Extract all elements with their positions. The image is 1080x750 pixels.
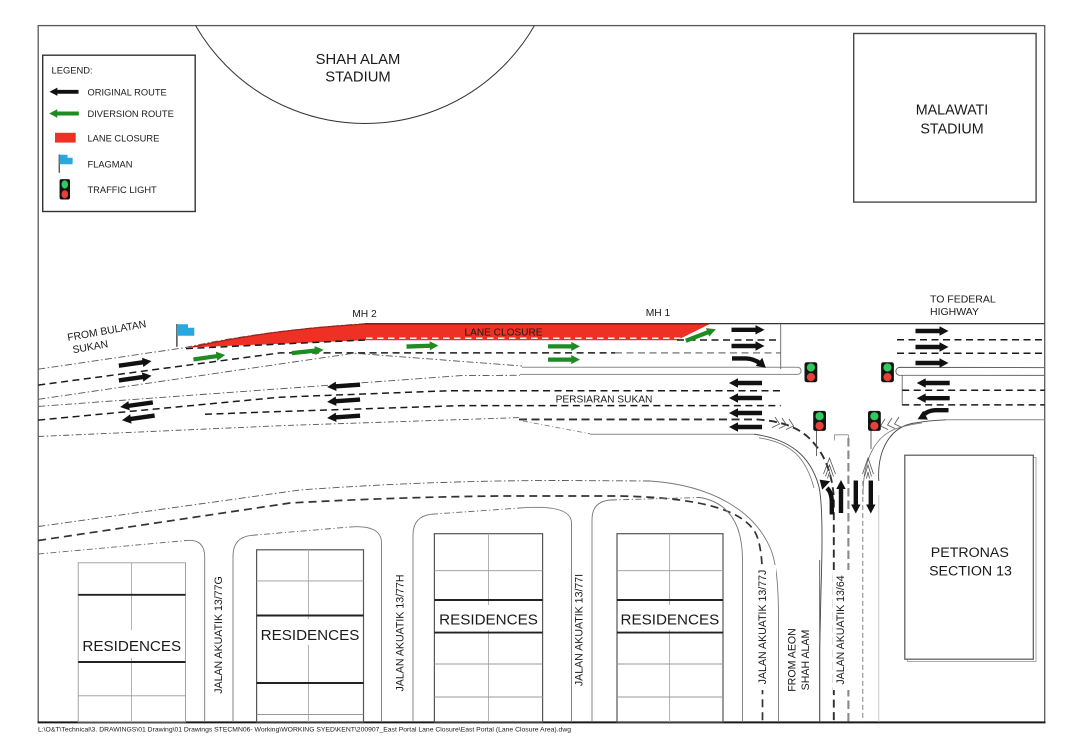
svg-text:PERSIARAN SUKAN: PERSIARAN SUKAN — [556, 395, 653, 406]
svg-text:LANE CLOSURE: LANE CLOSURE — [465, 327, 543, 338]
svg-text:SECTION 13: SECTION 13 — [929, 563, 1012, 579]
svg-text:FROM AEON: FROM AEON — [787, 628, 799, 692]
svg-text:STADIUM: STADIUM — [325, 70, 391, 86]
svg-text:JALAN AKUATIK 13/77I: JALAN AKUATIK 13/77I — [574, 574, 586, 686]
svg-text:TO FEDERAL: TO FEDERAL — [930, 294, 996, 306]
svg-text:DIVERSION ROUTE: DIVERSION ROUTE — [88, 109, 174, 119]
svg-text:RESIDENCES: RESIDENCES — [82, 638, 181, 655]
svg-text:SHAH ALAM: SHAH ALAM — [800, 630, 812, 691]
svg-text:STADIUM: STADIUM — [920, 122, 983, 138]
svg-text:HIGHWAY: HIGHWAY — [930, 306, 979, 318]
svg-text:PETRONAS: PETRONAS — [931, 545, 1009, 561]
svg-text:LANE CLOSURE: LANE CLOSURE — [88, 133, 160, 143]
svg-text:L:\O&T\Technical\3. DRAWINGS\0: L:\O&T\Technical\3. DRAWINGS\01 Drawing\… — [38, 727, 571, 734]
svg-text:JALAN AKUATIK 13/77G: JALAN AKUATIK 13/77G — [213, 576, 225, 694]
svg-text:MALAWATI: MALAWATI — [916, 103, 989, 119]
svg-text:RESIDENCES: RESIDENCES — [261, 627, 360, 644]
svg-text:MH 1: MH 1 — [646, 308, 671, 319]
svg-text:RESIDENCES: RESIDENCES — [621, 612, 720, 629]
svg-text:JALAN AKUATIK 13/64: JALAN AKUATIK 13/64 — [835, 575, 847, 684]
svg-text:JALAN AKUATIK 13/77H: JALAN AKUATIK 13/77H — [395, 575, 407, 692]
svg-text:ORIGINAL ROUTE: ORIGINAL ROUTE — [88, 87, 167, 97]
svg-text:TRAFFIC LIGHT: TRAFFIC LIGHT — [88, 185, 158, 195]
svg-text:FLAGMAN: FLAGMAN — [88, 159, 133, 169]
svg-text:RESIDENCES: RESIDENCES — [439, 612, 538, 629]
svg-text:JALAN AKUATIK 13/77J: JALAN AKUATIK 13/77J — [757, 570, 769, 685]
svg-text:MH 2: MH 2 — [352, 309, 377, 320]
svg-text:LEGEND:: LEGEND: — [52, 65, 93, 76]
svg-text:SHAH ALAM: SHAH ALAM — [316, 52, 401, 68]
